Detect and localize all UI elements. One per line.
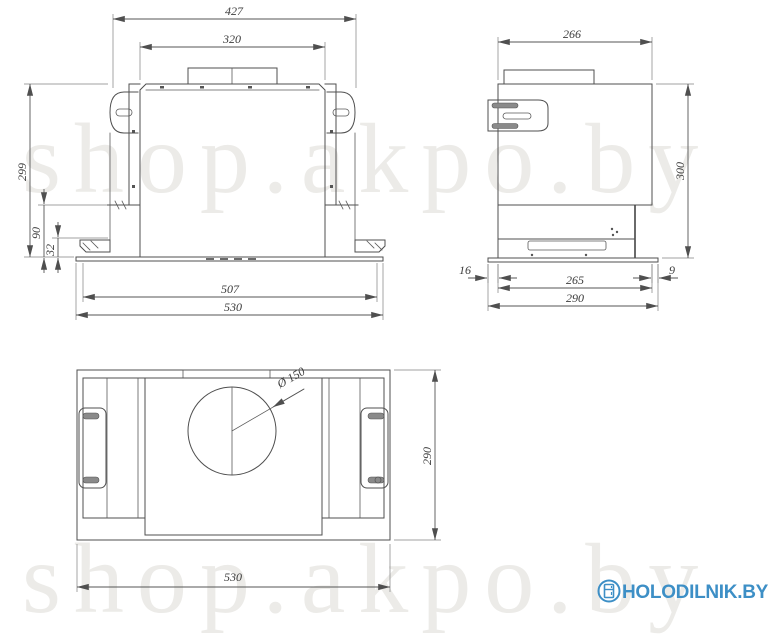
- side-duct-stub: [504, 70, 594, 84]
- watermark-text-top: shop.akpo.by: [22, 103, 711, 214]
- dim-label: 90: [29, 227, 43, 239]
- dim-label: 530: [224, 570, 242, 584]
- dim-label: 290: [420, 447, 434, 465]
- side-dim-overall-depth: 290: [488, 264, 658, 311]
- front-duct-stub: [188, 68, 277, 84]
- front-bottom-panel: [76, 257, 383, 261]
- dim-label: 530: [224, 300, 242, 314]
- dim-label: 299: [15, 163, 29, 181]
- dim-label: 300: [673, 162, 687, 181]
- bottom-outer-outline: [77, 370, 390, 540]
- dim-label: 266: [563, 27, 581, 41]
- dim-label-duct-diameter: Ø 150: [274, 364, 308, 391]
- side-bottom-panel: [488, 258, 658, 262]
- front-dim-plinth-height: 32: [43, 222, 108, 273]
- dim-label: 290: [566, 291, 584, 305]
- front-left-foot: [80, 240, 110, 252]
- dim-label: 16: [459, 263, 471, 277]
- front-dim-duct-panel-width: 320: [140, 32, 325, 80]
- dim-label: 320: [222, 32, 241, 46]
- bottom-left-wing: [79, 378, 145, 518]
- side-dim-top-depth: 266: [498, 27, 652, 80]
- bottom-duct-collar: [183, 370, 270, 378]
- dim-label: 32: [43, 244, 57, 257]
- holodilnik-logo: HOLODILNIK.BY: [599, 581, 769, 604]
- side-dim-body-depth: 265: [498, 264, 652, 293]
- front-right-foot: [355, 240, 385, 252]
- front-dim-bottom-inner-width: 507: [83, 263, 377, 302]
- technical-drawing: shop.akpo.by shop.akpo.by: [0, 0, 770, 640]
- dim-label: 265: [566, 273, 584, 287]
- bottom-dim-depth: 290: [394, 370, 441, 540]
- logo-text: HOLODILNIK.BY: [622, 582, 769, 603]
- dim-label: 427: [225, 4, 244, 18]
- side-dim-rear-gap: 9: [633, 263, 678, 283]
- bottom-duct-circle: Ø 150: [188, 364, 307, 475]
- dim-label: 507: [221, 282, 240, 296]
- bottom-center-body: [145, 378, 322, 535]
- bottom-right-wing: [322, 378, 388, 518]
- dim-label: 9: [669, 263, 675, 277]
- front-dim-overall-width: 427: [113, 4, 356, 88]
